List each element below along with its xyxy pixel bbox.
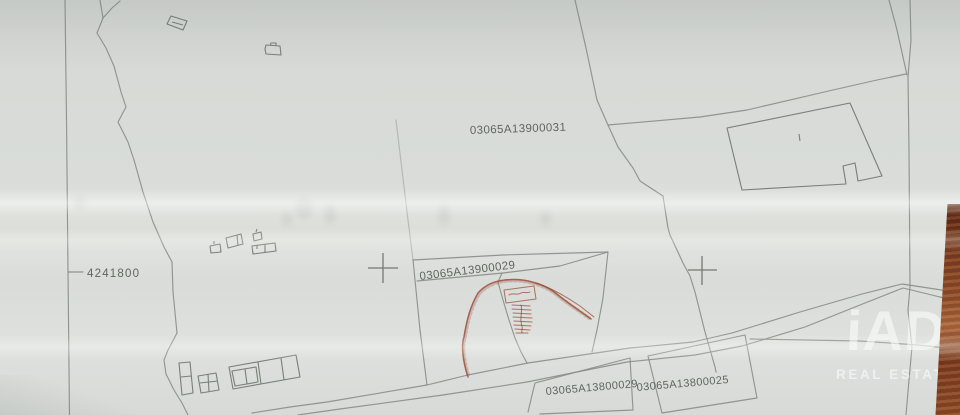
- centre-parcel-top-edge: [413, 252, 608, 260]
- map-drawing: 03065A13900031 03065A13900029 03065A1380…: [0, 0, 960, 415]
- meander-boundary: [97, 0, 188, 415]
- top-centre-boundary: [575, 0, 608, 125]
- paper-bleedthrough-mark: [74, 196, 86, 210]
- building-cluster-sq1: [210, 241, 221, 253]
- parcel-label-bottom-left: 03065A13800029: [545, 378, 638, 398]
- building-large-topright: [727, 103, 882, 190]
- building-tall-narrow: [179, 362, 193, 395]
- centre-parcel-right-edge: [592, 252, 608, 352]
- fork-rising-boundary: [608, 74, 906, 125]
- parcel-label-bottom-right: 03065A13800025: [636, 374, 729, 394]
- building-topleft-2: [265, 43, 281, 55]
- faint-upper-boundary: [396, 120, 413, 260]
- watermark: iAD REAL ESTATE: [836, 303, 956, 382]
- map-labels: 03065A13900031 03065A13900029 03065A1380…: [87, 122, 729, 398]
- parcel-boundary-lines: [65, 0, 960, 415]
- grid-northing-label: 4241800: [87, 268, 140, 280]
- building-long-bottom: [229, 355, 300, 389]
- cadastral-map-photo: 03065A13900031 03065A13900029 03065A1380…: [0, 0, 960, 415]
- building-cluster-sq2: [253, 229, 262, 241]
- paper-bleedthrough-mark: [438, 203, 450, 225]
- grid-cross-icon: [688, 256, 717, 285]
- parcel-label-top: 03065A13900031: [470, 122, 567, 137]
- paper-bleedthrough-mark: [540, 210, 551, 226]
- building-house: [198, 373, 219, 393]
- building-cluster-rect: [226, 234, 243, 248]
- red-arc-hatch-texture: [464, 281, 589, 374]
- left-border-line: [65, 0, 70, 415]
- building-topleft-1: [167, 16, 187, 30]
- grid-cross-icon: [368, 253, 398, 283]
- paper-bleedthrough-mark: [324, 204, 336, 224]
- red-building-scribble: [509, 292, 530, 295]
- parcel-label-centre: 03065A13900029: [419, 259, 516, 283]
- red-annotation-building: [504, 286, 536, 303]
- fork-descending-boundary: [608, 125, 716, 372]
- paper-bleedthrough-mark: [282, 212, 292, 226]
- building-cluster-long: [252, 243, 276, 254]
- meander-branch: [103, 1, 120, 18]
- building-footprints: [167, 16, 882, 395]
- topright-diagonal: [889, 0, 907, 75]
- paper-bleedthrough-mark: [296, 197, 312, 219]
- iad-logo: iAD: [835, 303, 958, 359]
